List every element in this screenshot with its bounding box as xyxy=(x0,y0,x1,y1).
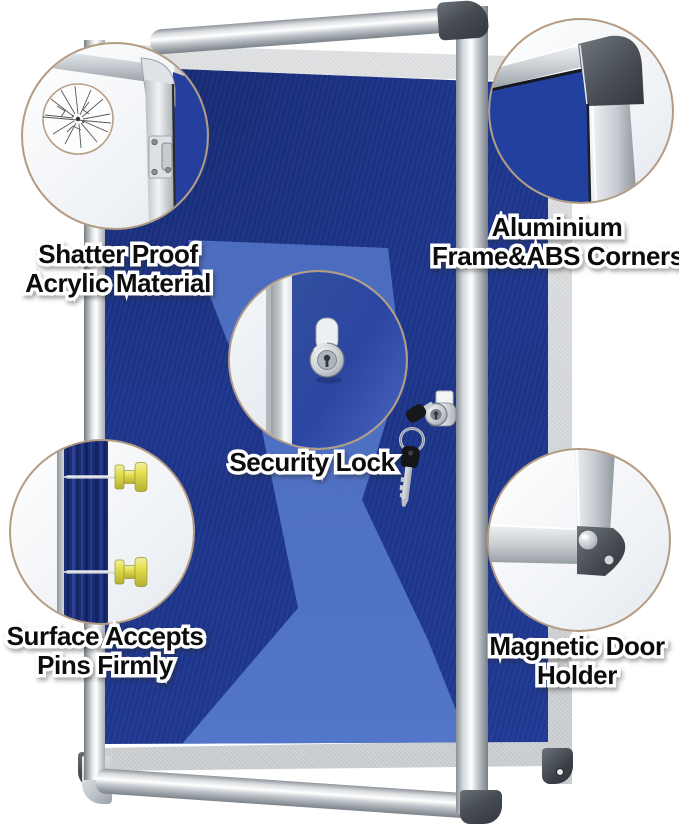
callout-shatter-circle xyxy=(21,42,209,230)
callout-lock-circle xyxy=(228,270,408,450)
abs-corner-block xyxy=(578,36,644,106)
door-top-right-abs-corner xyxy=(437,0,490,41)
board-backing-edge xyxy=(57,441,64,623)
label-line: Surface Accepts xyxy=(2,622,208,651)
label-line: Security Lock xyxy=(210,448,414,477)
label-pins-firmly: Surface Accepts Pins Firmly xyxy=(2,622,208,680)
magnet-dot xyxy=(578,530,598,550)
noticeboard-feature-infographic: Shatter Proof Acrylic Material Aluminium… xyxy=(0,0,679,830)
crack-inset-circle xyxy=(43,84,113,154)
label-security-lock: Security Lock xyxy=(210,448,414,477)
door-rail-detail xyxy=(23,46,151,82)
label-shatter-proof: Shatter Proof Acrylic Material xyxy=(0,240,236,298)
label-magnetic-holder: Magnetic Door Holder xyxy=(465,632,679,690)
corner-detail-graphic xyxy=(490,20,672,202)
callout-magnet-circle xyxy=(487,448,671,632)
hinge-graphic xyxy=(149,136,172,178)
label-line: Aluminium xyxy=(432,213,679,242)
corner-screw-dot xyxy=(557,769,563,775)
aluminium-stile xyxy=(591,96,637,202)
label-line: Acrylic Material xyxy=(0,269,236,298)
magnet-detail-graphic xyxy=(489,450,669,630)
callout-pins-circle xyxy=(9,439,195,625)
screw-hole xyxy=(604,555,614,565)
label-line: Frame&ABS Corners xyxy=(432,242,679,271)
door-top-rail xyxy=(149,5,482,55)
label-line: Shatter Proof xyxy=(0,240,236,269)
label-aluminium-corners: Aluminium Frame&ABS Corners xyxy=(432,213,679,271)
strip-shadow-edge xyxy=(266,272,271,448)
label-line: Pins Firmly xyxy=(2,651,208,680)
callout-corner-circle xyxy=(488,18,674,204)
shatter-detail-graphic xyxy=(23,44,207,228)
label-line: Holder xyxy=(465,661,679,690)
aluminium-stile-inside xyxy=(575,450,615,534)
door-edge-strip xyxy=(271,272,292,448)
label-line: Magnetic Door xyxy=(465,632,679,661)
felt-cross-section xyxy=(64,441,108,623)
aluminium-rail-inside xyxy=(489,524,579,564)
pins-detail-graphic xyxy=(11,441,193,623)
door-bottom-rail xyxy=(95,768,486,819)
door-bottom-right-abs-corner xyxy=(460,790,502,824)
lock-detail-graphic xyxy=(230,272,406,448)
